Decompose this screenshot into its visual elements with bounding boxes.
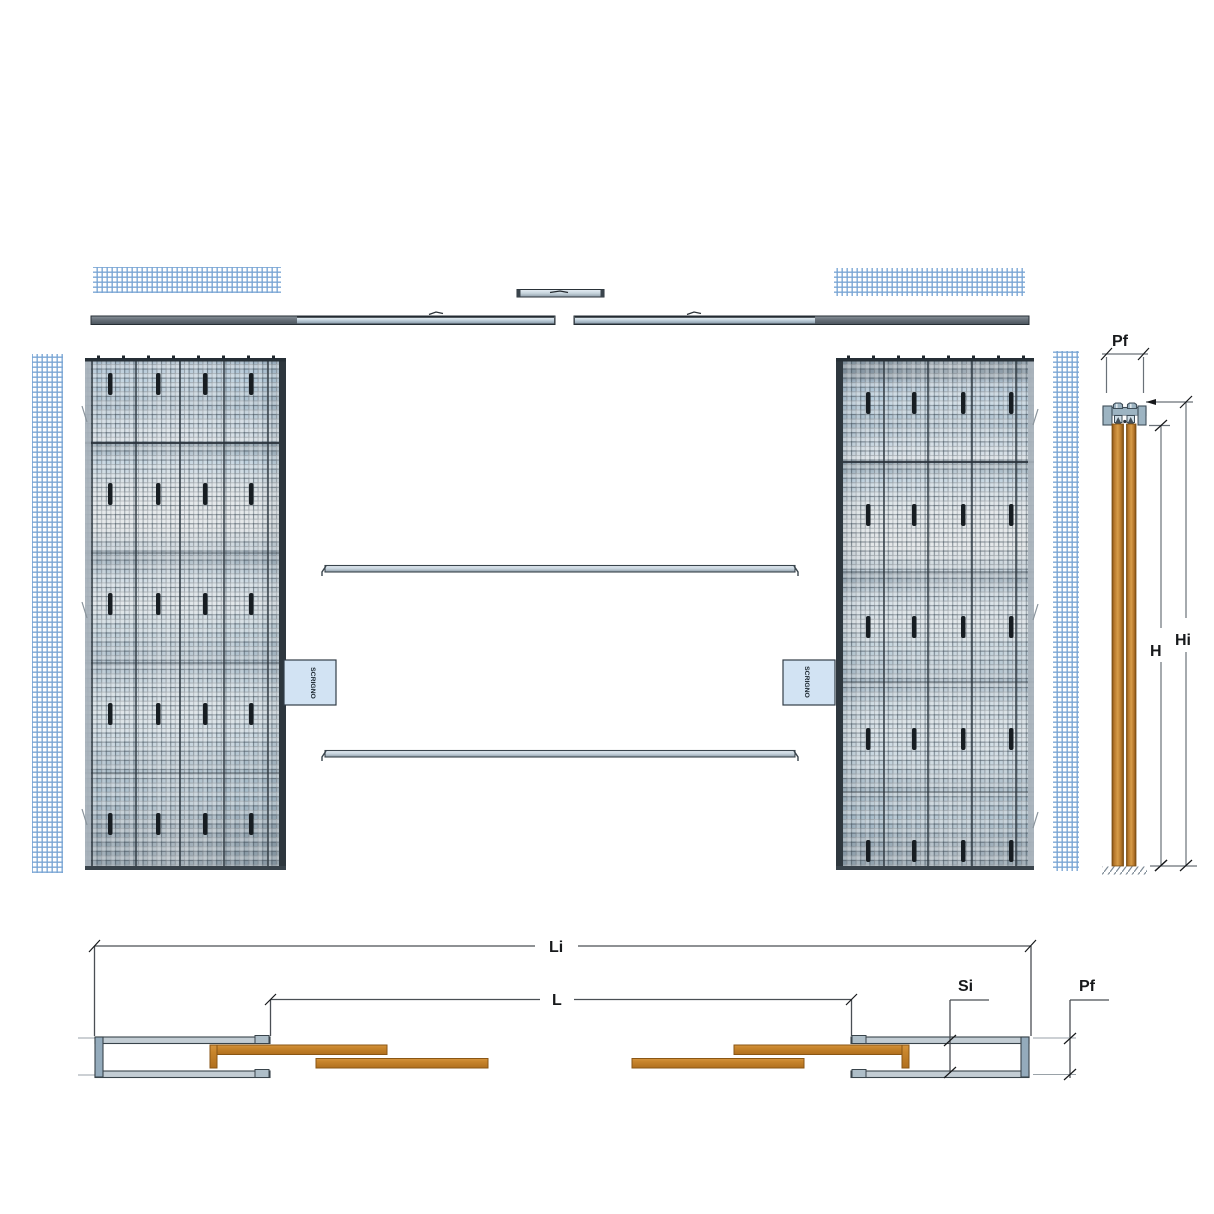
svg-text:SCRIGNO: SCRIGNO xyxy=(309,667,316,699)
svg-text:Hi: Hi xyxy=(1175,632,1191,649)
svg-text:Li: Li xyxy=(549,939,563,956)
svg-text:L: L xyxy=(552,992,562,1009)
svg-text:Si: Si xyxy=(958,978,973,995)
svg-text:SCRIGNO: SCRIGNO xyxy=(803,666,810,698)
svg-text:H: H xyxy=(1150,643,1162,660)
svg-text:Pf: Pf xyxy=(1079,978,1096,995)
svg-text:Pf: Pf xyxy=(1112,333,1129,350)
